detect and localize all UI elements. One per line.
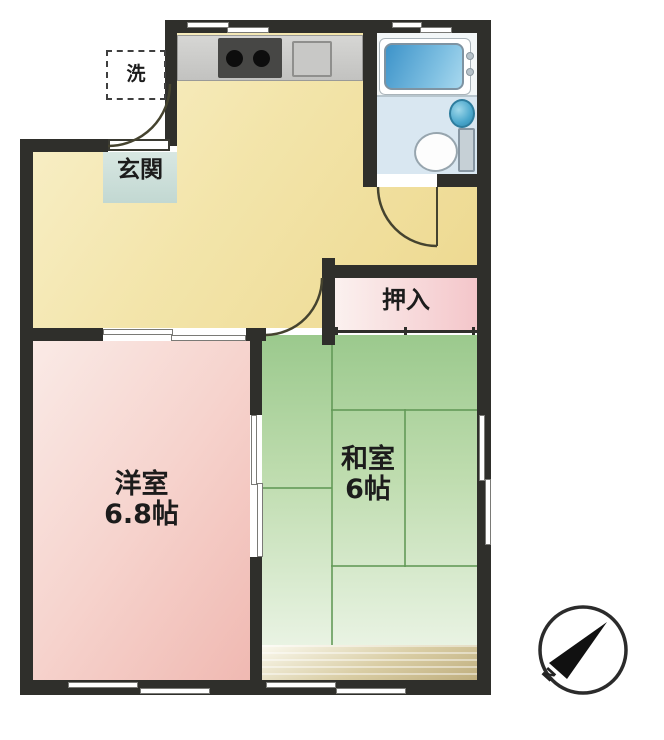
wall-kitchen-west-a: [33, 328, 103, 341]
entrance-door-leaf: [108, 139, 170, 151]
wall-closet-top: [333, 265, 477, 278]
western-room-label: 洋室 6.8帖: [33, 470, 250, 530]
wall-bath-left: [363, 33, 377, 187]
wall-bath-bottom-right: [437, 174, 477, 187]
bath-faucet: [466, 52, 474, 60]
wall-rooms-vertical-top: [250, 328, 262, 415]
bath-toilet-divider: [377, 95, 477, 97]
entrance-label: 玄関: [103, 158, 177, 184]
wall-entrance-horizontal: [20, 139, 108, 152]
kitchen-western-sliding-door: [171, 335, 246, 341]
stove-burner: [253, 50, 270, 67]
japanese-room-name: 和室: [341, 444, 395, 475]
bath-doorway: [377, 176, 437, 185]
toilet-tank: [458, 128, 475, 172]
western-room-name: 洋室: [115, 469, 169, 500]
laundry-label: 洗: [126, 64, 145, 85]
tatami-line: [331, 565, 477, 567]
laundry-box: 洗: [106, 50, 166, 100]
western-room-size: 6.8帖: [104, 499, 179, 530]
western-room-south-window: [140, 688, 210, 694]
bath-window: [392, 22, 422, 28]
kitchen-window: [227, 27, 269, 33]
compass: N: [538, 607, 626, 693]
wall-bath-bottom-left: [363, 174, 377, 187]
japanese-room-label: 和室 6帖: [298, 445, 438, 505]
wash-basin: [449, 99, 475, 128]
bath-faucet: [466, 68, 474, 76]
kitchen-western-sliding-door: [103, 329, 173, 335]
bathtub: [384, 43, 464, 90]
wall-left: [20, 139, 33, 695]
kitchen-sink: [292, 41, 332, 77]
kitchen-window: [187, 22, 229, 28]
bath-window: [420, 27, 452, 33]
western-room-south-window: [68, 682, 138, 688]
closet-label: 押入: [335, 287, 477, 314]
japanese-room-size: 6帖: [345, 474, 391, 505]
slide-tick: [335, 327, 338, 335]
veranda: [262, 645, 477, 680]
japanese-room-east-window: [479, 415, 485, 481]
slide-tick: [472, 327, 475, 335]
compass-north-label: N: [538, 664, 560, 685]
japanese-room-south-window: [336, 688, 406, 694]
japanese-room-east-window: [485, 479, 491, 545]
compass-circle: [540, 607, 626, 693]
wall-right: [477, 20, 491, 695]
wall-rooms-vertical-bottom: [250, 557, 262, 680]
wall-entrance-vertical: [165, 20, 177, 146]
rooms-sliding-door: [257, 483, 263, 557]
stove-burner: [226, 50, 243, 67]
japanese-room-south-window: [266, 682, 336, 688]
rooms-sliding-door: [251, 415, 257, 485]
compass-needle: [549, 622, 607, 679]
floor-plan: 洗 玄関 押入 洋室 6.8帖 和室 6帖 N: [0, 0, 664, 740]
wall-closet-left: [322, 258, 335, 345]
slide-tick: [404, 327, 407, 335]
